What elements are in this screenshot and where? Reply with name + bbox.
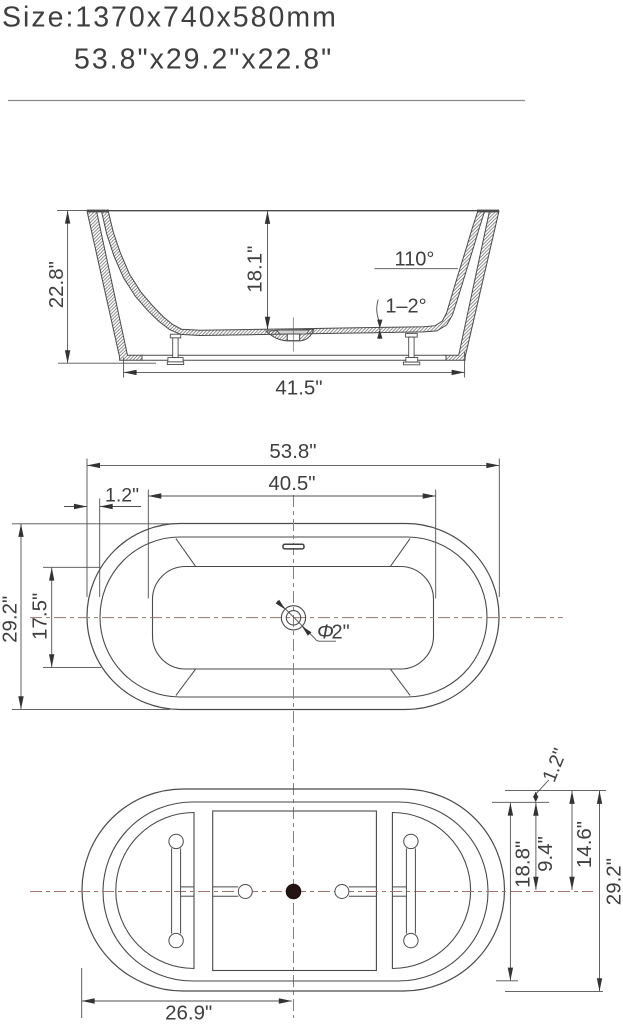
svg-text:14.6": 14.6" xyxy=(573,821,596,868)
svg-text:18.8": 18.8" xyxy=(512,841,535,888)
svg-text:1.2": 1.2" xyxy=(105,485,139,507)
svg-text:53.8": 53.8" xyxy=(269,440,316,463)
svg-text:29.2": 29.2" xyxy=(603,858,623,905)
svg-text:9.4": 9.4" xyxy=(534,836,557,872)
svg-text:22.8": 22.8" xyxy=(45,261,68,308)
svg-text:53.8"x29.2"x22.8": 53.8"x29.2"x22.8" xyxy=(74,44,333,76)
svg-text:18.1": 18.1" xyxy=(244,246,267,293)
svg-text:41.5": 41.5" xyxy=(275,377,322,400)
svg-text:2": 2" xyxy=(332,622,350,644)
svg-text:1.2": 1.2" xyxy=(538,745,571,785)
svg-text:Size:1370x740x580mm: Size:1370x740x580mm xyxy=(2,2,338,34)
svg-text:40.5": 40.5" xyxy=(268,472,315,495)
svg-text:110°: 110° xyxy=(395,249,435,271)
svg-text:26.9": 26.9" xyxy=(165,1002,212,1024)
svg-text:1–2°: 1–2° xyxy=(385,296,426,318)
svg-text:17.5": 17.5" xyxy=(29,593,52,640)
svg-text:29.2": 29.2" xyxy=(0,596,21,643)
